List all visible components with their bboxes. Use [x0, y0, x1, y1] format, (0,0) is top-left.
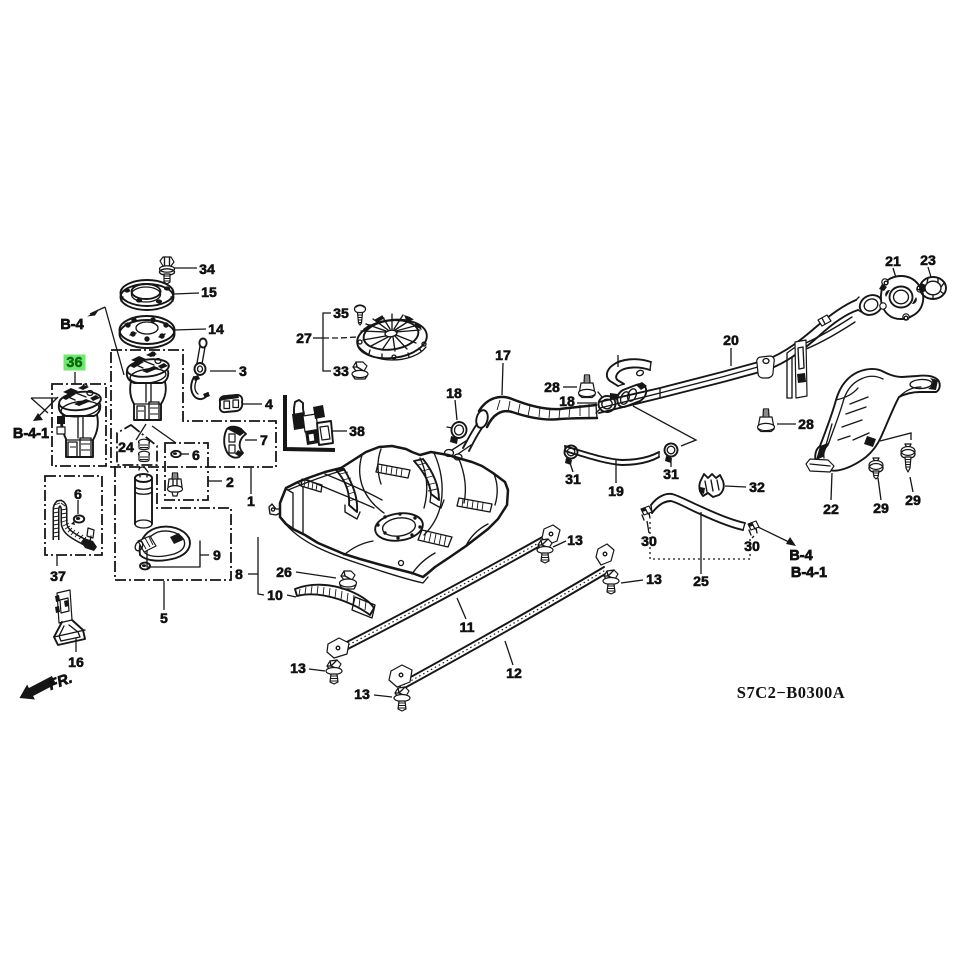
- svg-text:29: 29: [873, 501, 889, 517]
- svg-text:B-4: B-4: [789, 548, 812, 564]
- svg-text:37: 37: [50, 569, 66, 585]
- svg-text:22: 22: [823, 502, 839, 518]
- svg-text:S7C2−B0300A: S7C2−B0300A: [737, 683, 845, 702]
- svg-text:36: 36: [66, 355, 82, 371]
- svg-text:3: 3: [239, 364, 247, 380]
- svg-text:31: 31: [663, 467, 679, 483]
- svg-text:20: 20: [723, 333, 739, 349]
- svg-text:6: 6: [192, 448, 200, 464]
- svg-text:18: 18: [446, 386, 462, 402]
- svg-text:B-4-1: B-4-1: [791, 565, 827, 581]
- svg-text:28: 28: [544, 380, 560, 396]
- svg-text:8: 8: [235, 567, 243, 583]
- svg-text:16: 16: [68, 655, 84, 671]
- svg-text:24: 24: [118, 440, 134, 456]
- svg-text:35: 35: [333, 306, 349, 322]
- svg-text:6: 6: [74, 487, 82, 503]
- svg-text:7: 7: [260, 433, 268, 449]
- svg-text:32: 32: [749, 480, 765, 496]
- svg-text:33: 33: [333, 364, 349, 380]
- svg-text:30: 30: [744, 539, 760, 555]
- svg-text:29: 29: [905, 493, 921, 509]
- svg-text:14: 14: [208, 322, 224, 338]
- svg-text:13: 13: [646, 572, 662, 588]
- svg-text:B-4-1: B-4-1: [13, 426, 49, 442]
- svg-text:5: 5: [160, 611, 168, 627]
- svg-text:11: 11: [460, 620, 475, 636]
- svg-text:10: 10: [267, 588, 283, 604]
- svg-text:28: 28: [798, 417, 814, 433]
- svg-text:13: 13: [290, 661, 306, 677]
- svg-text:25: 25: [693, 574, 709, 590]
- svg-text:12: 12: [506, 666, 522, 682]
- svg-text:34: 34: [199, 262, 215, 278]
- svg-text:21: 21: [885, 254, 901, 270]
- svg-text:30: 30: [641, 534, 657, 550]
- svg-text:15: 15: [201, 285, 217, 301]
- svg-text:2: 2: [226, 475, 234, 491]
- svg-text:27: 27: [296, 331, 312, 347]
- svg-text:13: 13: [354, 687, 370, 703]
- svg-text:13: 13: [567, 533, 583, 549]
- svg-text:4: 4: [265, 397, 273, 413]
- svg-text:1: 1: [247, 494, 255, 510]
- svg-text:38: 38: [349, 424, 365, 440]
- svg-text:18: 18: [559, 394, 575, 410]
- svg-text:31: 31: [565, 472, 581, 488]
- svg-text:23: 23: [920, 253, 936, 269]
- svg-text:26: 26: [276, 565, 292, 581]
- svg-text:9: 9: [213, 548, 221, 564]
- svg-text:17: 17: [495, 348, 511, 364]
- svg-text:19: 19: [608, 484, 624, 500]
- svg-text:B-4: B-4: [60, 317, 83, 333]
